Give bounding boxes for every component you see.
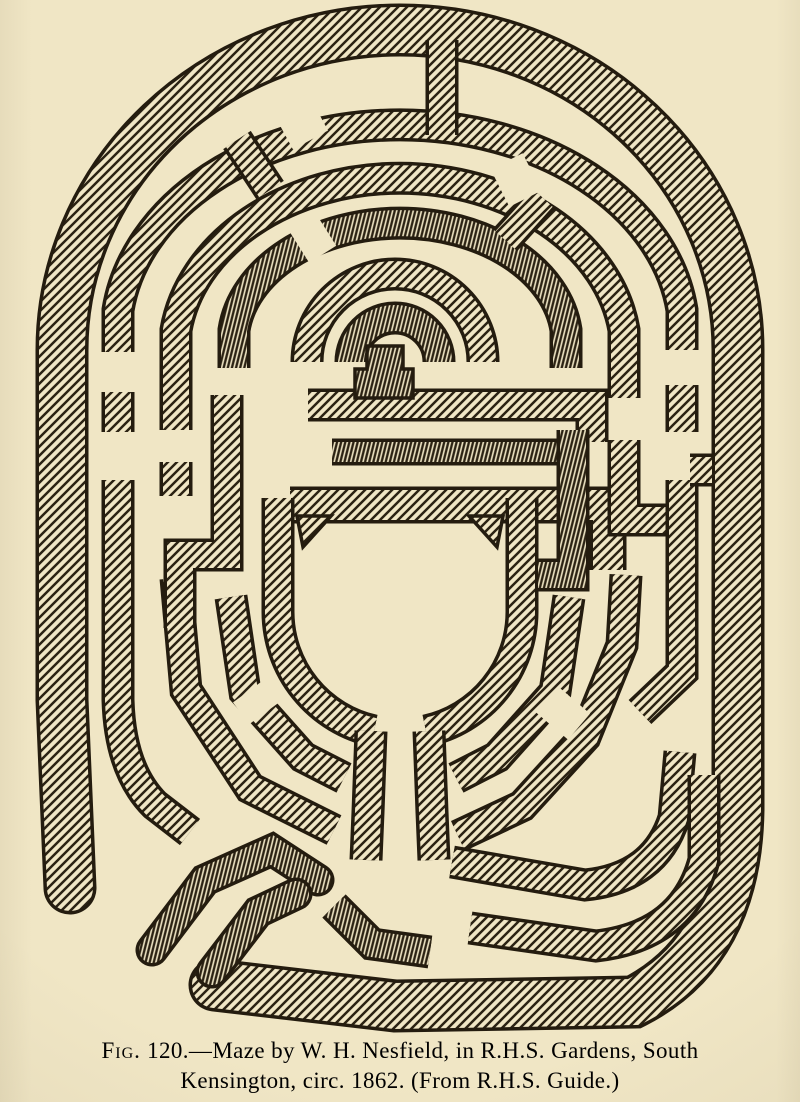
- figure-label: Fig.: [101, 1038, 140, 1063]
- stem-right: [429, 731, 434, 860]
- caption-line-1-text: 120.—Maze by W. H. Nesfield, in R.H.S. G…: [141, 1038, 699, 1063]
- gap-ring-d-top: [283, 112, 318, 131]
- maze-illustration: [0, 0, 800, 1102]
- gap-ring-c-top: [500, 172, 532, 188]
- caption-line-1: Fig. 120.—Maze by W. H. Nesfield, in R.H…: [0, 1036, 800, 1066]
- stem-left: [366, 731, 371, 860]
- book-page: Fig. 120.—Maze by W. H. Nesfield, in R.H…: [0, 0, 800, 1102]
- caption-line-2: Kensington, circ. 1862. (From R.H.S. Gui…: [0, 1066, 800, 1096]
- maze-figure: [0, 0, 800, 1102]
- gap-ring-e-left: [250, 690, 266, 712]
- gap-ring-f-right: [552, 700, 574, 726]
- figure-caption: Fig. 120.—Maze by W. H. Nesfield, in R.H…: [0, 1036, 800, 1096]
- gap-ring-b-top: [298, 228, 325, 245]
